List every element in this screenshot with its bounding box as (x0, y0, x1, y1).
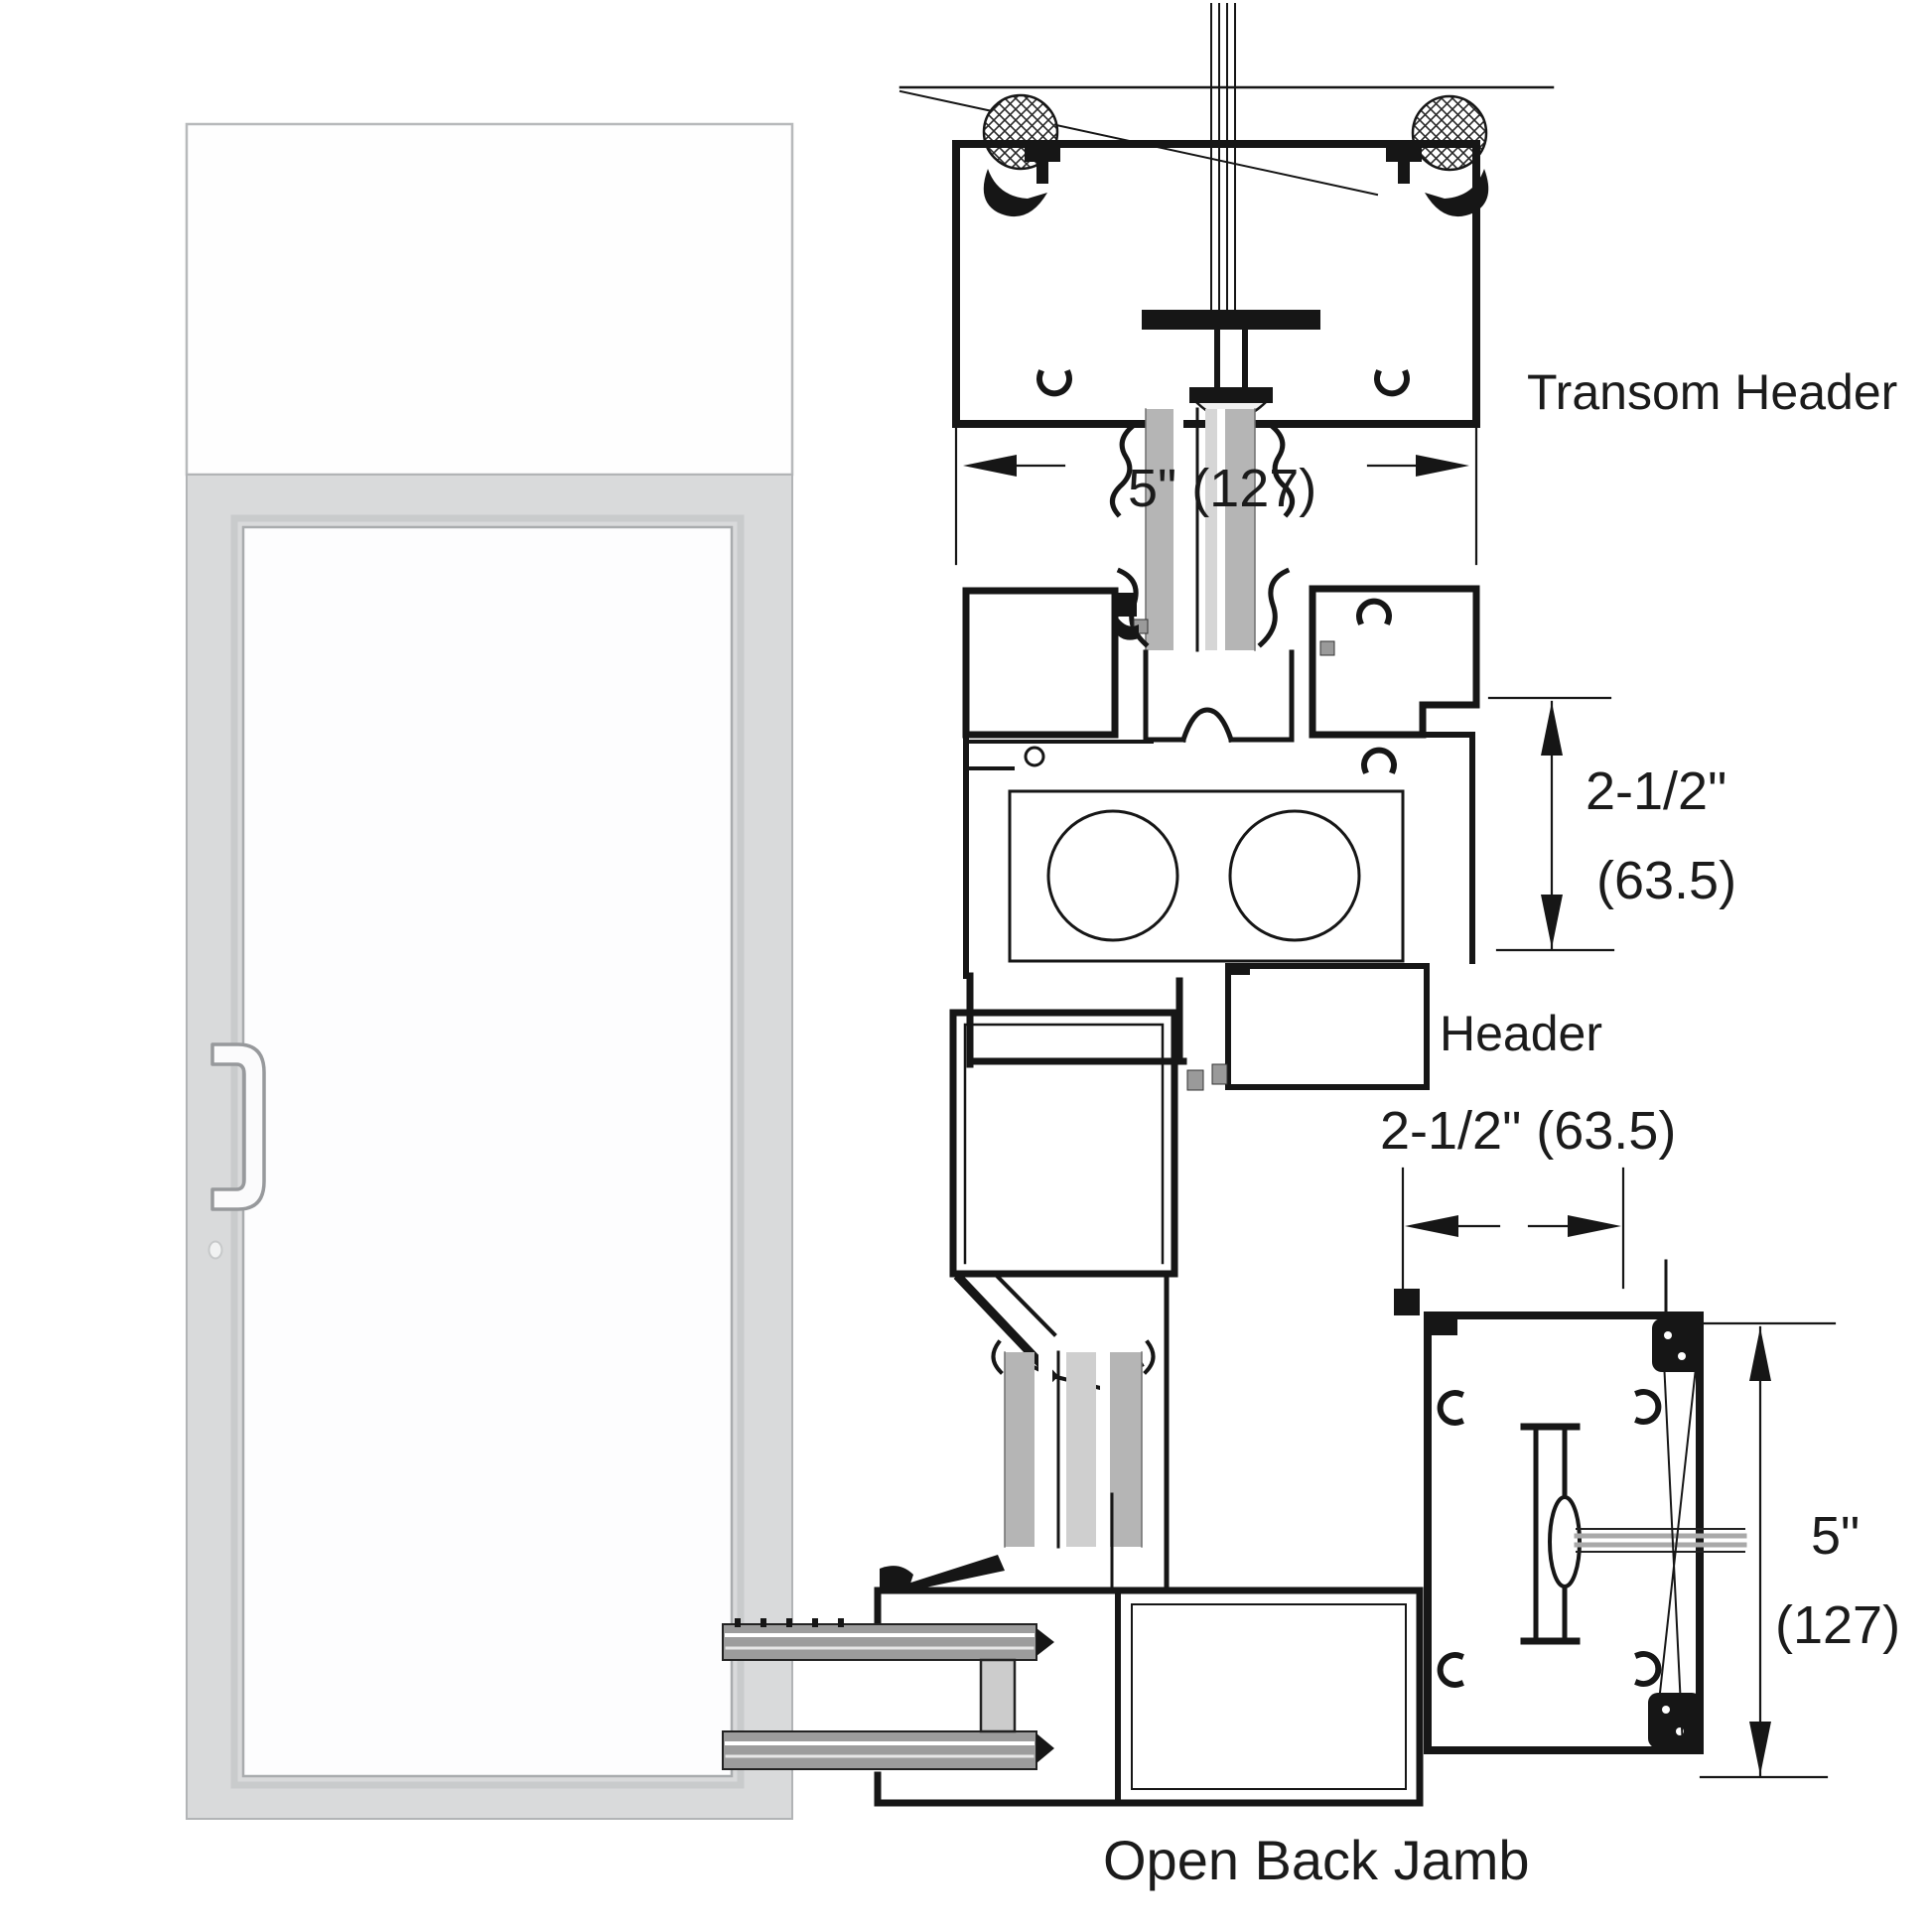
anchor-t-bar (1142, 310, 1320, 330)
anchor-stem (1217, 330, 1245, 389)
header-tube (1010, 791, 1403, 961)
screw-icon (1320, 641, 1334, 655)
arrow-left-icon (1405, 1215, 1458, 1237)
dim-text-jamb-depth-in: 5" (1811, 1506, 1860, 1566)
arrow-down-icon (1541, 895, 1563, 948)
anchor-lines (1211, 4, 1235, 310)
screw-boss (1441, 1393, 1460, 1423)
dim-text-jamb-depth-mm: (127) (1775, 1595, 1900, 1655)
label-header: Header (1440, 1006, 1602, 1061)
jamb-horizontal-tube (878, 1590, 1420, 1803)
glazing-vinyl-lens (1550, 1497, 1580, 1587)
screw-boss (1364, 751, 1394, 770)
screw-boss (1638, 1654, 1658, 1684)
section-detail-drawing: Transom Header 5" (127) 2-1/2" (63.5) He… (0, 0, 1932, 1932)
fastener-shaft (1577, 1536, 1744, 1545)
arrow-right-icon (1568, 1215, 1621, 1237)
interlock-gaskets (1036, 1628, 1054, 1763)
screw-boss (1441, 1655, 1460, 1685)
gasket-bump (1026, 748, 1043, 765)
door-top-rail-tube (953, 1013, 1174, 1274)
lock-indicator-icon (209, 1242, 222, 1259)
door-glazing (1005, 1352, 1142, 1547)
anchor-wedge (898, 1555, 1005, 1590)
label-transom-header: Transom Header (1527, 364, 1897, 420)
door-top-rail-section (953, 1013, 1174, 1590)
gasket-clip (1386, 148, 1422, 184)
open-back-jamb-section (1428, 1261, 1744, 1750)
screw-boss (1638, 1392, 1658, 1422)
screw-icon (1212, 1064, 1227, 1084)
arrow-left-icon (963, 455, 1017, 477)
bottom-rail-assembly (723, 1555, 1420, 1803)
dimension-header-height (1489, 698, 1613, 950)
screw-icon (1187, 1070, 1203, 1090)
applied-stop-block (1228, 966, 1427, 1087)
arrow-up-icon (1541, 702, 1563, 756)
corner-gasket (1652, 1318, 1704, 1372)
transom-glazing (1112, 409, 1334, 655)
screw-boss (1359, 602, 1389, 621)
anchor-cap (1189, 387, 1273, 403)
dim-text-jamb-face: 2-1/2" (63.5) (1380, 1101, 1676, 1161)
dim-text-header-height-mm: (63.5) (1596, 851, 1736, 910)
glazing-pocket-bump (1183, 710, 1231, 740)
glazing-gasket (1261, 571, 1287, 644)
transom-header-section (900, 4, 1553, 424)
header-right-block (1312, 589, 1476, 735)
arrow-up-icon (1749, 1327, 1771, 1381)
corner-gasket (1648, 1693, 1702, 1748)
door-stop-channel (970, 976, 1183, 1064)
screw-boss (1377, 373, 1407, 393)
frame-side-box (966, 591, 1115, 735)
screw-boss (1039, 373, 1069, 393)
transom-panel (187, 124, 792, 475)
arrow-right-icon (1416, 455, 1469, 477)
fastener-lines (1577, 1529, 1744, 1552)
drawing-canvas: Transom Header 5" (127) 2-1/2" (63.5) He… (0, 0, 1932, 1932)
dim-text-transom-depth: 5" (127) (1128, 459, 1316, 518)
dimension-jamb-face (1394, 1169, 1623, 1315)
door-elevation (187, 124, 792, 1819)
door-glass (243, 527, 732, 1776)
label-open-back-jamb: Open Back Jamb (1103, 1829, 1530, 1891)
arrow-down-icon (1749, 1722, 1771, 1775)
dim-text-header-height-in: 2-1/2" (1586, 761, 1726, 821)
